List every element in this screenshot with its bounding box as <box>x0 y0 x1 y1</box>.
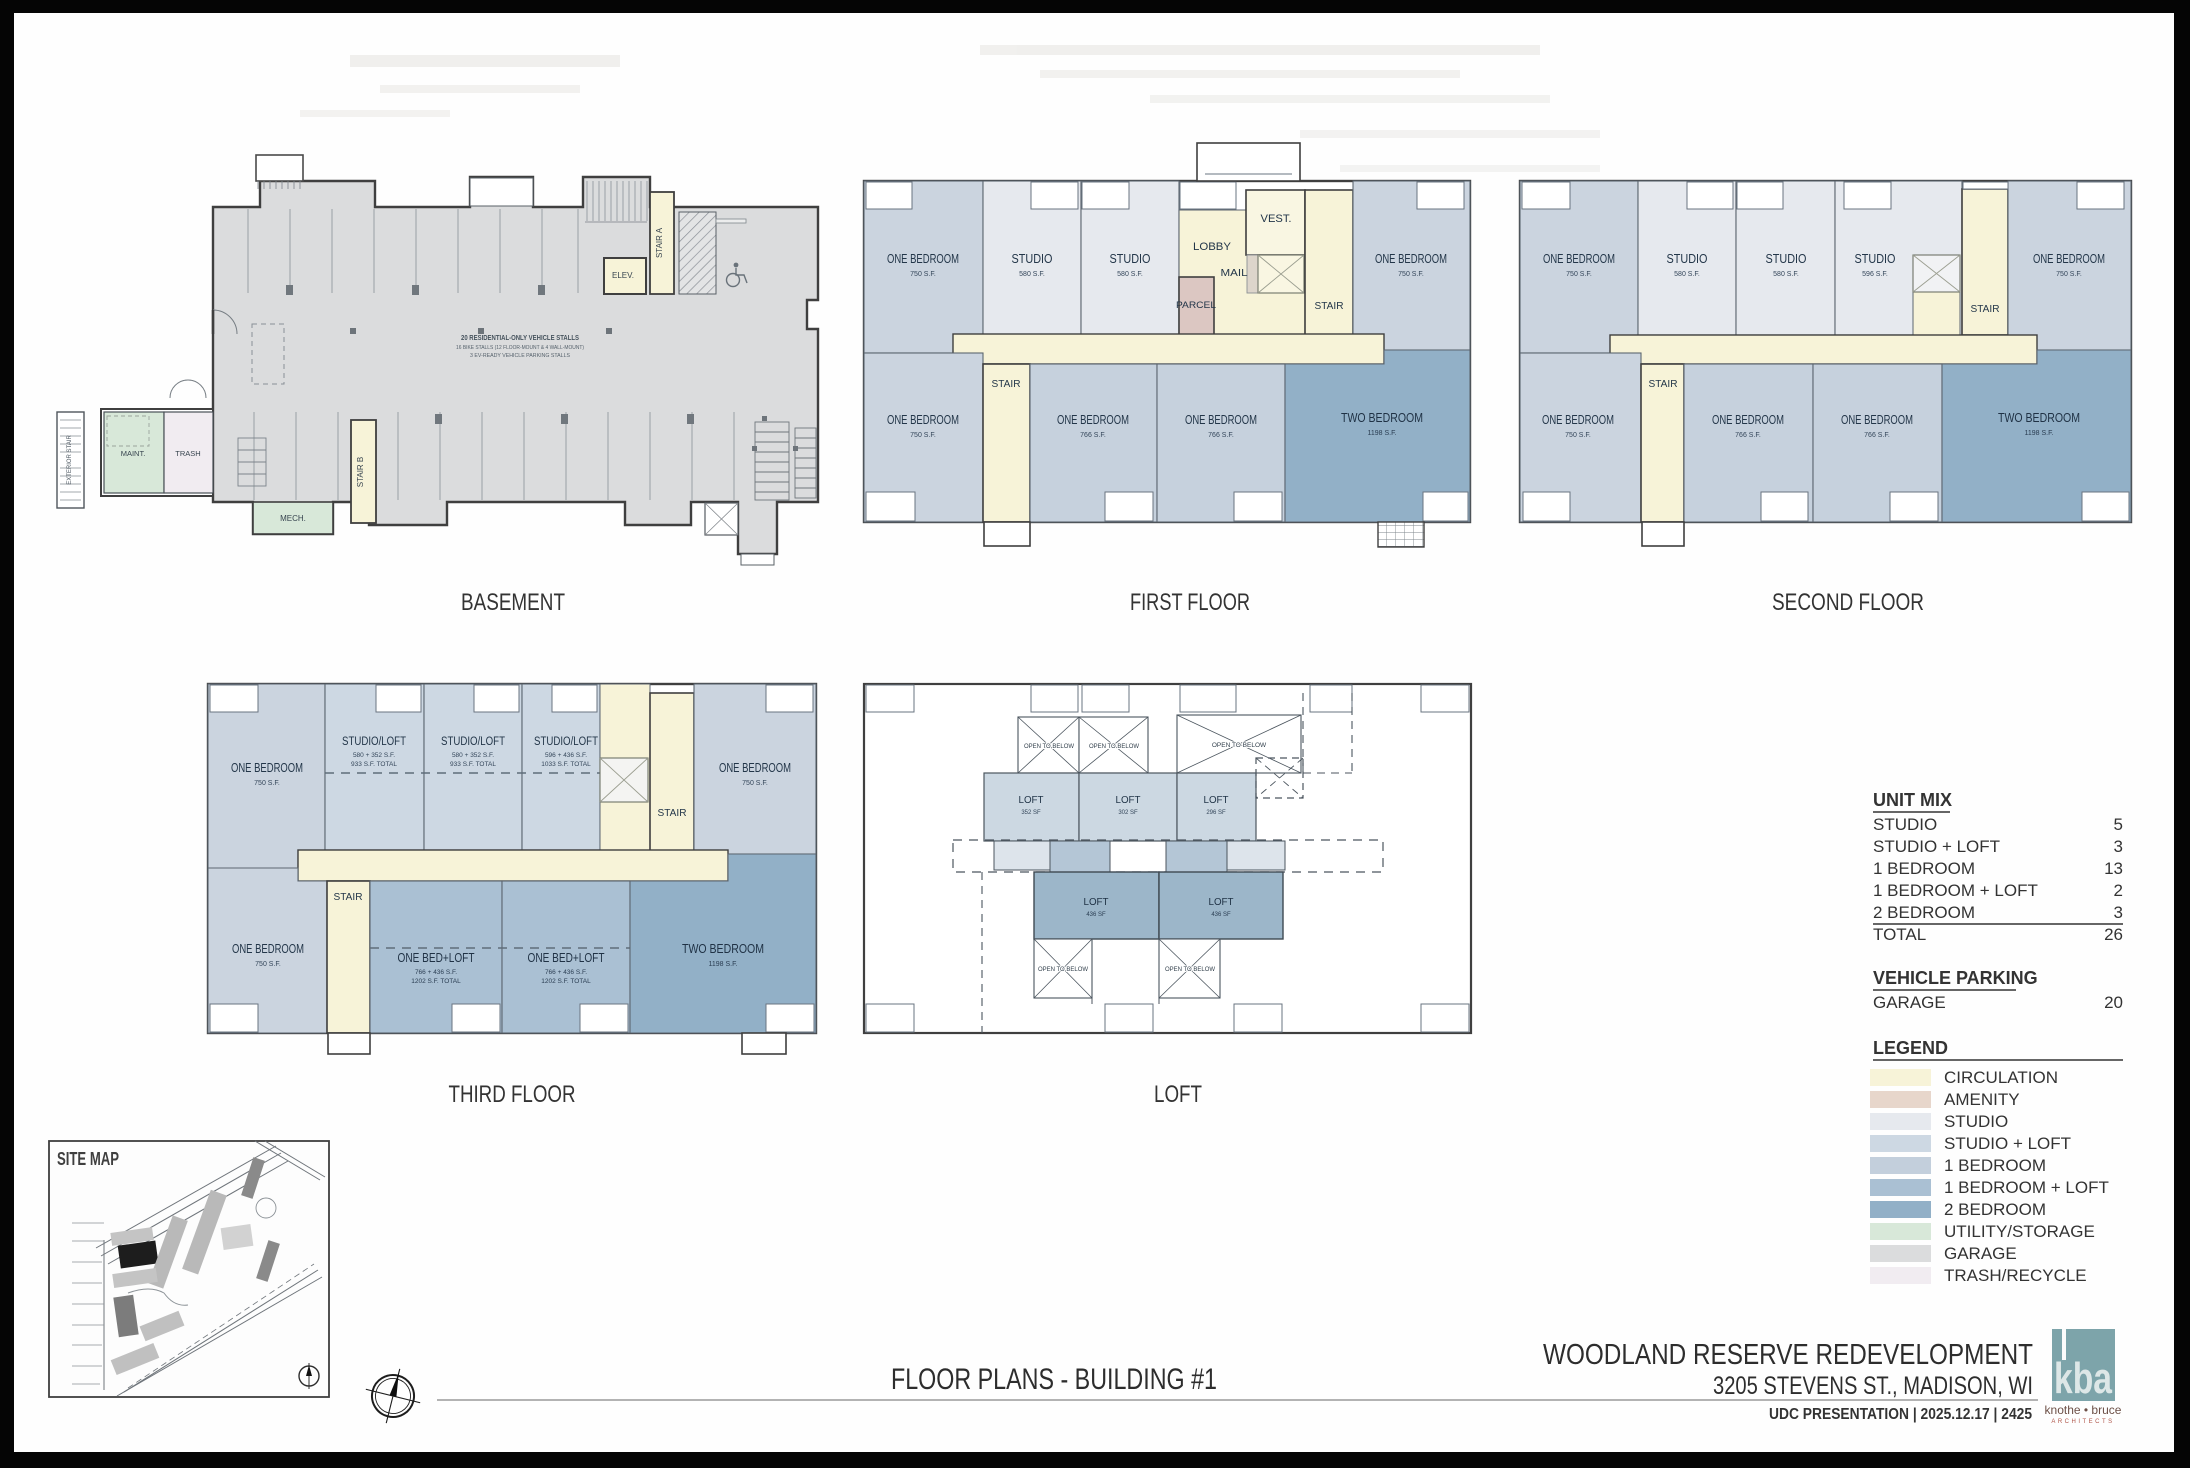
svg-text:296 SF: 296 SF <box>1206 810 1226 816</box>
svg-text:766 S.F.: 766 S.F. <box>1080 432 1106 439</box>
svg-text:OPEN TO BELOW: OPEN TO BELOW <box>1212 742 1267 749</box>
svg-text:352 SF: 352 SF <box>1021 810 1041 816</box>
svg-text:MAIL: MAIL <box>1221 268 1249 279</box>
svg-text:OPEN TO BELOW: OPEN TO BELOW <box>1089 744 1139 750</box>
svg-text:766 S.F.: 766 S.F. <box>1208 432 1234 439</box>
svg-text:ONE BEDROOM: ONE BEDROOM <box>1185 413 1257 427</box>
svg-text:436 SF: 436 SF <box>1211 912 1231 918</box>
svg-text:kba: kba <box>2054 1354 2112 1403</box>
svg-text:1 BEDROOM: 1 BEDROOM <box>1873 859 1975 878</box>
svg-text:750 S.F.: 750 S.F. <box>1566 271 1592 278</box>
svg-text:3: 3 <box>2114 837 2123 856</box>
svg-text:STUDIO: STUDIO <box>1855 252 1896 266</box>
svg-text:3: 3 <box>2114 903 2123 922</box>
svg-text:STAIR: STAIR <box>658 808 687 819</box>
svg-text:ARCHITECTS: ARCHITECTS <box>2051 1419 2114 1425</box>
svg-text:2 BEDROOM: 2 BEDROOM <box>1873 903 1975 922</box>
svg-text:1198 S.F.: 1198 S.F. <box>708 961 737 968</box>
svg-text:750 S.F.: 750 S.F. <box>1398 271 1424 278</box>
svg-text:PARCEL: PARCEL <box>1176 300 1216 311</box>
svg-text:596 S.F.: 596 S.F. <box>1862 271 1888 278</box>
svg-text:STUDIO + LOFT: STUDIO + LOFT <box>1873 837 2000 856</box>
svg-text:ONE BED+LOFT: ONE BED+LOFT <box>528 951 605 965</box>
svg-text:knothe • bruce: knothe • bruce <box>2045 1403 2122 1417</box>
svg-text:WOODLAND RESERVE REDEVELOPMENT: WOODLAND RESERVE REDEVELOPMENT <box>1543 1339 2033 1371</box>
svg-text:26: 26 <box>2104 925 2123 944</box>
svg-text:1 BEDROOM + LOFT: 1 BEDROOM + LOFT <box>1944 1178 2109 1197</box>
svg-text:20: 20 <box>2104 993 2123 1012</box>
svg-text:1198 S.F.: 1198 S.F. <box>2024 430 2053 437</box>
svg-text:CIRCULATION: CIRCULATION <box>1944 1068 2058 1087</box>
svg-text:766 + 436 S.F.: 766 + 436 S.F. <box>545 969 587 976</box>
svg-text:ONE BEDROOM: ONE BEDROOM <box>887 413 959 427</box>
svg-text:ONE BEDROOM: ONE BEDROOM <box>1057 413 1129 427</box>
svg-text:580 S.F.: 580 S.F. <box>1117 271 1143 278</box>
svg-text:13: 13 <box>2104 859 2123 878</box>
svg-text:LOFT: LOFT <box>1154 1081 1202 1108</box>
svg-text:5: 5 <box>2114 815 2123 834</box>
svg-text:OPEN TO BELOW: OPEN TO BELOW <box>1038 967 1088 973</box>
svg-text:STAIR A: STAIR A <box>655 227 664 258</box>
svg-text:750 S.F.: 750 S.F. <box>910 271 936 278</box>
svg-text:16 BIKE STALLS (12 FLOOR-MOUNT: 16 BIKE STALLS (12 FLOOR-MOUNT & 4 WALL-… <box>456 345 584 351</box>
svg-text:933 S.F. TOTAL: 933 S.F. TOTAL <box>450 761 496 768</box>
svg-text:EXTERIOR STAIR: EXTERIOR STAIR <box>67 435 73 485</box>
svg-text:LOFT: LOFT <box>1204 794 1230 806</box>
svg-text:933 S.F. TOTAL: 933 S.F. TOTAL <box>351 761 397 768</box>
svg-text:580 S.F.: 580 S.F. <box>1674 271 1700 278</box>
svg-text:STAIR: STAIR <box>1315 301 1344 312</box>
svg-text:1202 S.F. TOTAL: 1202 S.F. TOTAL <box>541 978 591 985</box>
svg-text:ONE BEDROOM: ONE BEDROOM <box>2033 252 2105 266</box>
svg-text:THIRD FLOOR: THIRD FLOOR <box>449 1081 576 1108</box>
svg-text:STUDIO: STUDIO <box>1944 1112 2008 1131</box>
svg-text:STUDIO: STUDIO <box>1873 815 1937 834</box>
svg-text:ONE BEDROOM: ONE BEDROOM <box>231 761 303 775</box>
svg-text:LOFT: LOFT <box>1116 794 1142 806</box>
svg-text:580 S.F.: 580 S.F. <box>1773 271 1799 278</box>
svg-text:OPEN TO BELOW: OPEN TO BELOW <box>1165 967 1215 973</box>
svg-text:302 SF: 302 SF <box>1118 810 1138 816</box>
svg-text:ONE BEDROOM: ONE BEDROOM <box>1841 413 1913 427</box>
svg-text:ONE BEDROOM: ONE BEDROOM <box>1375 252 1447 266</box>
svg-text:AMENITY: AMENITY <box>1944 1090 2020 1109</box>
svg-text:LOFT: LOFT <box>1084 896 1110 908</box>
svg-text:1033 S.F. TOTAL: 1033 S.F. TOTAL <box>541 761 591 768</box>
svg-text:1 BEDROOM: 1 BEDROOM <box>1944 1156 2046 1175</box>
svg-text:STAIR B: STAIR B <box>356 457 365 488</box>
svg-text:TWO BEDROOM: TWO BEDROOM <box>682 942 764 956</box>
svg-text:596 + 436 S.F.: 596 + 436 S.F. <box>545 752 587 759</box>
svg-text:750 S.F.: 750 S.F. <box>2056 271 2082 278</box>
svg-text:2 BEDROOM: 2 BEDROOM <box>1944 1200 2046 1219</box>
svg-text:750 S.F.: 750 S.F. <box>255 961 281 968</box>
svg-text:UDC PRESENTATION | 2025.12.17: UDC PRESENTATION | 2025.12.17 | 2425 <box>1769 1406 2032 1423</box>
svg-text:ONE BEDROOM: ONE BEDROOM <box>719 761 791 775</box>
svg-text:ONE BEDROOM: ONE BEDROOM <box>1712 413 1784 427</box>
svg-text:766 + 436 S.F.: 766 + 436 S.F. <box>415 969 457 976</box>
svg-text:OPEN TO BELOW: OPEN TO BELOW <box>1024 744 1074 750</box>
svg-text:ONE BED+LOFT: ONE BED+LOFT <box>398 951 475 965</box>
svg-text:580 + 352 S.F.: 580 + 352 S.F. <box>353 752 395 759</box>
svg-text:GARAGE: GARAGE <box>1944 1244 2017 1263</box>
svg-text:TWO BEDROOM: TWO BEDROOM <box>1998 411 2080 425</box>
svg-text:STUDIO: STUDIO <box>1766 252 1807 266</box>
svg-text:1 BEDROOM + LOFT: 1 BEDROOM + LOFT <box>1873 881 2038 900</box>
svg-text:MECH.: MECH. <box>280 514 306 523</box>
svg-text:436 SF: 436 SF <box>1086 912 1106 918</box>
svg-text:ONE BEDROOM: ONE BEDROOM <box>1542 413 1614 427</box>
svg-text:580 S.F.: 580 S.F. <box>1019 271 1045 278</box>
svg-text:STUDIO/LOFT: STUDIO/LOFT <box>342 736 406 748</box>
svg-text:VEHICLE PARKING: VEHICLE PARKING <box>1873 968 2038 988</box>
svg-text:STUDIO/LOFT: STUDIO/LOFT <box>534 736 598 748</box>
svg-text:STAIR: STAIR <box>334 892 363 903</box>
svg-text:20 RESIDENTIAL-ONLY VEHICLE ST: 20 RESIDENTIAL-ONLY VEHICLE STALLS <box>461 335 579 342</box>
svg-text:3 EV-READY VEHICLE PARKING STA: 3 EV-READY VEHICLE PARKING STALLS <box>470 353 570 359</box>
svg-text:STUDIO/LOFT: STUDIO/LOFT <box>441 736 505 748</box>
svg-text:ONE BEDROOM: ONE BEDROOM <box>232 942 304 956</box>
svg-text:TRASH/RECYCLE: TRASH/RECYCLE <box>1944 1266 2087 1285</box>
svg-text:1202 S.F. TOTAL: 1202 S.F. TOTAL <box>411 978 461 985</box>
svg-text:766 S.F.: 766 S.F. <box>1864 432 1890 439</box>
svg-text:STUDIO: STUDIO <box>1110 252 1151 266</box>
svg-text:STUDIO: STUDIO <box>1012 252 1053 266</box>
svg-text:LOBBY: LOBBY <box>1193 241 1232 253</box>
svg-text:MAINT.: MAINT. <box>121 449 146 458</box>
svg-text:STUDIO + LOFT: STUDIO + LOFT <box>1944 1134 2071 1153</box>
svg-text:750 S.F.: 750 S.F. <box>742 780 768 787</box>
svg-text:750 S.F.: 750 S.F. <box>254 780 280 787</box>
svg-text:ELEV.: ELEV. <box>612 271 634 280</box>
svg-text:LOFT: LOFT <box>1209 896 1235 908</box>
svg-text:766 S.F.: 766 S.F. <box>1735 432 1761 439</box>
svg-text:STUDIO: STUDIO <box>1667 252 1708 266</box>
svg-text:SECOND FLOOR: SECOND FLOOR <box>1772 589 1924 616</box>
svg-text:TWO BEDROOM: TWO BEDROOM <box>1341 411 1423 425</box>
svg-text:TRASH: TRASH <box>175 449 200 458</box>
svg-text:1198 S.F.: 1198 S.F. <box>1367 430 1396 437</box>
svg-text:SITE MAP: SITE MAP <box>57 1149 119 1169</box>
svg-text:ONE BEDROOM: ONE BEDROOM <box>887 252 959 266</box>
svg-text:580 + 352 S.F.: 580 + 352 S.F. <box>452 752 494 759</box>
svg-text:STAIR: STAIR <box>992 379 1021 390</box>
svg-text:2: 2 <box>2114 881 2123 900</box>
svg-text:UTILITY/STORAGE: UTILITY/STORAGE <box>1944 1222 2095 1241</box>
svg-text:3205 STEVENS ST., MADISON, WI: 3205 STEVENS ST., MADISON, WI <box>1713 1372 2033 1400</box>
svg-text:ONE BEDROOM: ONE BEDROOM <box>1543 252 1615 266</box>
svg-text:VEST.: VEST. <box>1261 213 1292 225</box>
svg-text:STAIR: STAIR <box>1649 379 1678 390</box>
svg-text:STAIR: STAIR <box>1971 304 2000 315</box>
svg-text:TOTAL: TOTAL <box>1873 925 1926 944</box>
svg-text:LOFT: LOFT <box>1019 794 1045 806</box>
svg-text:LEGEND: LEGEND <box>1873 1038 1948 1058</box>
svg-text:FLOOR PLANS - BUILDING #1: FLOOR PLANS - BUILDING #1 <box>891 1363 1217 1396</box>
svg-text:750 S.F.: 750 S.F. <box>1565 432 1591 439</box>
svg-text:BASEMENT: BASEMENT <box>461 589 565 616</box>
svg-text:750 S.F.: 750 S.F. <box>910 432 936 439</box>
svg-text:UNIT MIX: UNIT MIX <box>1873 790 1952 810</box>
svg-text:FIRST FLOOR: FIRST FLOOR <box>1130 589 1250 616</box>
svg-text:GARAGE: GARAGE <box>1873 993 1946 1012</box>
